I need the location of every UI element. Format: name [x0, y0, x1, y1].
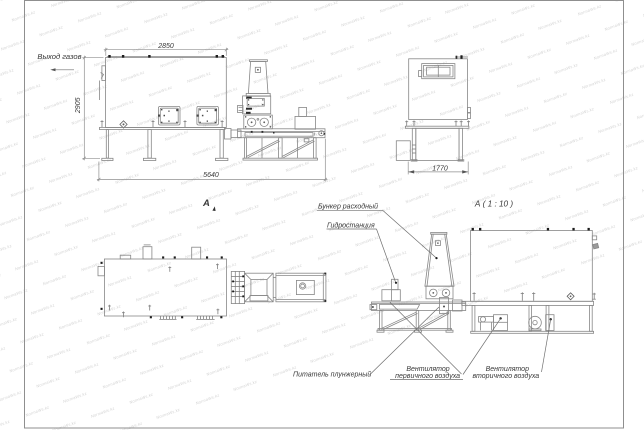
svg-text:A: A [202, 198, 210, 209]
svg-text:Выход газов: Выход газов [37, 52, 81, 61]
svg-text:первичного воздуха: первичного воздуха [395, 372, 460, 380]
svg-text:1770: 1770 [432, 165, 448, 172]
svg-text:А ( 1 : 10 ): А ( 1 : 10 ) [474, 199, 513, 208]
svg-text:Гидростанция: Гидростанция [327, 222, 375, 230]
svg-text:2905: 2905 [75, 97, 82, 114]
svg-text:5640: 5640 [203, 172, 219, 179]
svg-text:2850: 2850 [157, 43, 174, 50]
svg-text:Бункер расходный: Бункер расходный [318, 202, 378, 210]
svg-text:Питатель плунжерный: Питатель плунжерный [293, 370, 371, 378]
svg-text:вторичного воздуха: вторичного воздуха [472, 372, 539, 380]
